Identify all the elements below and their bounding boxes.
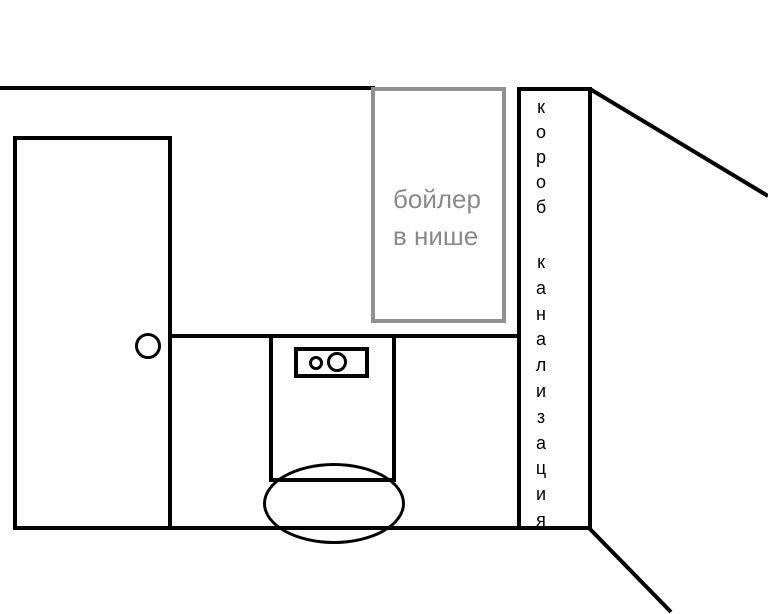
top-wall-line xyxy=(0,86,375,90)
bathroom-sketch-canvas: бойлер в нише короб канализация xyxy=(0,0,768,614)
bottom-wall-line xyxy=(13,526,517,530)
door-handle-circle xyxy=(135,333,161,359)
perspective-line-top-right xyxy=(590,89,768,196)
flush-button-small-circle xyxy=(309,356,323,370)
sewer-duct-label-word2: канализация xyxy=(534,250,548,534)
perspective-line-bottom-right xyxy=(589,528,671,612)
flush-button-large-circle xyxy=(327,352,347,372)
boiler-niche-label: бойлер в нише xyxy=(393,181,481,255)
sewer-duct-label-word1: короб xyxy=(534,95,548,220)
toilet-bowl-ellipse xyxy=(263,463,405,544)
boiler-niche-label-line1: бойлер xyxy=(393,181,481,218)
sewer-duct-column xyxy=(517,87,592,530)
boiler-niche-label-line2: в нише xyxy=(393,218,481,255)
